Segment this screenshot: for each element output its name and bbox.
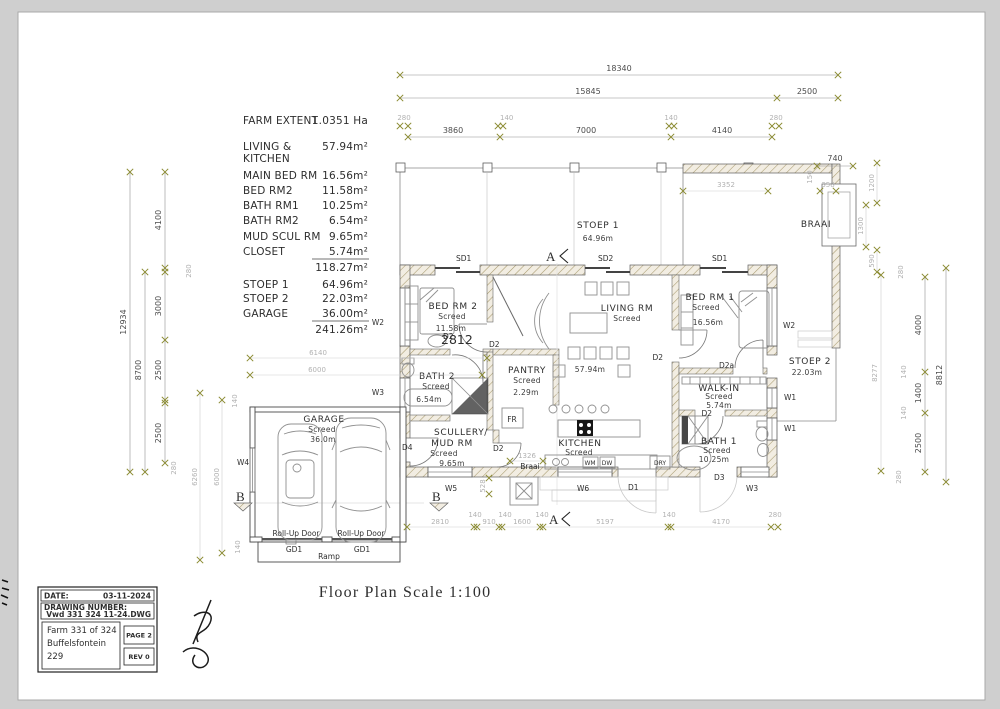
- dim-text-light: 1200: [868, 174, 876, 192]
- dim-text-light: 280: [170, 461, 178, 474]
- dim-text-light: 140: [234, 540, 242, 553]
- dim-text-light: 140: [900, 365, 908, 378]
- pantry-finish: Screed: [513, 376, 541, 385]
- revision: REV 0: [128, 653, 150, 661]
- bath2-name: BATH 2: [419, 372, 455, 382]
- dim-text-light: 280: [397, 114, 410, 122]
- dry-tag: DRY: [654, 460, 666, 467]
- living-finish: Screed: [613, 314, 641, 323]
- dim-text-light: 140: [500, 114, 513, 122]
- dim-text: 740: [827, 154, 842, 163]
- w1-tag: W1: [784, 393, 796, 402]
- farm-line3: 229: [47, 652, 63, 662]
- drawing-title: Floor Plan Scale 1:100: [319, 584, 492, 601]
- stoep1-area: 64.96m: [583, 234, 614, 243]
- gd1-tag: GD1: [286, 545, 303, 554]
- w2-tag: W2: [783, 321, 795, 330]
- farm-extent-value: 1.0351 Ha: [312, 115, 368, 127]
- dim-text: 2500: [154, 360, 163, 380]
- stoep1-name: STOEP 1: [577, 221, 619, 231]
- dim-text: 3860: [443, 126, 463, 135]
- dim-text: 7000: [576, 126, 596, 135]
- dim-text-light: 6260: [191, 468, 199, 486]
- dim-text: 12934: [119, 309, 128, 334]
- rollup-door-label: Roll-Up Door: [272, 529, 320, 538]
- title-block: DATE: 03-11-2024 DRAWING NUMBER: Vwd 331…: [38, 587, 157, 672]
- legend-row-value: 11.58m²: [322, 185, 368, 197]
- garage-name: GARAGE: [303, 415, 344, 425]
- legend-row-label: KITCHEN: [243, 153, 290, 165]
- dim-text-light: 140: [498, 511, 511, 519]
- farm-line1: Farm 331 of 324: [47, 626, 117, 636]
- bath2-finish: Screed: [422, 382, 450, 391]
- braai-small-label: Braai: [520, 462, 540, 471]
- legend-row-label: MAIN BED RM: [243, 170, 317, 182]
- date-value: 03-11-2024: [103, 592, 151, 601]
- drawing-number-value: Vwd 331 324 11-24.DWG: [46, 610, 151, 619]
- legend-row-value: 16.56m²: [322, 170, 368, 182]
- bedrm2-name: BED RM 2: [428, 302, 477, 312]
- legend-row-value: 36.00m²: [322, 308, 368, 320]
- dim-text-light: 140: [662, 511, 675, 519]
- section-b-left: B: [236, 489, 245, 504]
- bedrm1-finish: Screed: [692, 303, 720, 312]
- d1-tag: D1: [628, 483, 639, 492]
- w3-tag: W3: [746, 484, 758, 493]
- pantry-area: 2.29m: [513, 388, 539, 397]
- dim-text-light: 1600: [513, 518, 531, 526]
- dim-text: 2500: [154, 423, 163, 443]
- dim-text-light: 280: [768, 511, 781, 519]
- w5-tag: W5: [445, 484, 457, 493]
- dim-text-light: 4170: [712, 518, 730, 526]
- d2-tag: D2: [443, 332, 454, 341]
- w3-tag: W3: [372, 388, 384, 397]
- bedrm1-area: 16.56m: [693, 318, 724, 327]
- dim-text: 1400: [914, 383, 923, 403]
- bath2-area: 6.54m: [416, 395, 442, 404]
- d2-tag: D2: [701, 409, 712, 418]
- sd2-tag: SD2: [598, 254, 614, 263]
- section-a-top: A: [546, 249, 556, 264]
- d3-tag: D3: [714, 473, 725, 482]
- scullery-name1: SCULLERY/: [434, 428, 488, 438]
- rollup-door-label: Roll-Up Door: [337, 529, 385, 538]
- legend-row-label: GARAGE: [243, 308, 288, 320]
- legend-row-label: MUD SCUL RM: [243, 231, 321, 243]
- stoep2-area: 22.03m: [792, 368, 823, 377]
- dim-text-light: 140: [900, 406, 908, 419]
- w4-tag: W4: [237, 458, 249, 467]
- farm-line2: Buffelsfontein: [47, 639, 106, 649]
- dim-text: 4140: [712, 126, 732, 135]
- dim-text-light: 150: [806, 170, 814, 183]
- dw-tag: DW: [602, 460, 613, 467]
- legend-row-label: BATH RM1: [243, 200, 299, 212]
- sd1-tag: SD1: [712, 254, 728, 263]
- dim-text-light: 6000: [213, 468, 221, 486]
- sd1-tag: SD1: [456, 254, 472, 263]
- dim-text-light: 140: [468, 511, 481, 519]
- d2-tag: D2: [493, 444, 504, 453]
- dim-text: 2500: [914, 433, 923, 453]
- section-b-right: B: [432, 489, 441, 504]
- dim-text: 8812: [935, 365, 944, 385]
- w1-tag: W1: [784, 424, 796, 433]
- dim-text-light: 528: [479, 479, 487, 492]
- page-number: PAGE 2: [126, 632, 152, 640]
- walkin-finish: Screed: [705, 392, 733, 401]
- d2a-tag: D2a: [719, 361, 734, 370]
- d2-tag: D2: [652, 353, 663, 362]
- dim-text-light: 1300: [857, 217, 865, 235]
- legend-subtotal: 118.27m²: [315, 262, 368, 274]
- dim-text: 8700: [134, 360, 143, 380]
- legend-row-label: CLOSET: [243, 246, 285, 258]
- bath1-area: 10.25m: [699, 455, 730, 464]
- dim-text-light: 1326: [518, 452, 536, 460]
- dim-text-light: 910: [482, 518, 495, 526]
- dim-text-light: 140: [231, 394, 239, 407]
- legend-row-label: BATH RM2: [243, 215, 299, 227]
- dim-text: 4100: [154, 210, 163, 230]
- farm-extent-label: FARM EXTENT: [243, 115, 318, 127]
- legend-row-value: 22.03m²: [322, 293, 368, 305]
- living-area: 57.94m: [575, 365, 606, 374]
- dim-text: 18340: [606, 64, 631, 73]
- dim-text-light: 5197: [596, 518, 614, 526]
- living-name: LIVING RM: [601, 304, 653, 314]
- garage-area: 36.0m: [310, 435, 336, 444]
- legend-row-label: LIVING &: [243, 141, 291, 153]
- legend-row-value: 64.96m²: [322, 279, 368, 291]
- dim-text-light: 140: [664, 114, 677, 122]
- garage-finish: Screed: [308, 425, 336, 434]
- wm-tag: WM: [584, 460, 595, 467]
- legend-row-value: 5.74m²: [329, 246, 368, 258]
- dim-text-light: 280: [185, 264, 193, 277]
- dim-text: 4000: [914, 315, 923, 335]
- dim-text-light: 590: [868, 254, 876, 267]
- date-label: DATE:: [44, 592, 69, 601]
- legend-row-value: 10.25m²: [322, 200, 368, 212]
- fr-tag: FR: [507, 415, 517, 424]
- legend-row-label: STOEP 2: [243, 293, 289, 305]
- dim-text-light: 280: [895, 470, 903, 483]
- kitchen-finish: Screed: [565, 448, 593, 457]
- stoep2-name: STOEP 2: [789, 357, 831, 367]
- legend-row-label: STOEP 1: [243, 279, 289, 291]
- scullery-finish: Screed: [430, 449, 458, 458]
- dim-text: 3000: [154, 296, 163, 316]
- ramp-label: Ramp: [318, 552, 340, 561]
- dim-text-light: 3352: [717, 181, 735, 189]
- dim-text-light: 6140: [309, 349, 327, 357]
- d2-tag: D2: [489, 340, 500, 349]
- legend-row-value: 9.65m²: [329, 231, 368, 243]
- legend-row-value: 57.94m²: [322, 141, 368, 153]
- dim-text-light: 280: [769, 114, 782, 122]
- gd1-tag: GD1: [354, 545, 371, 554]
- edge-artifact: [1, 580, 9, 605]
- w6-tag: W6: [577, 484, 589, 493]
- dim-text: 15845: [575, 87, 600, 96]
- pantry-name: PANTRY: [508, 366, 546, 376]
- floor-plan-drawing: FARM EXTENT 1.0351 Ha LIVING & 57.94m² K…: [0, 0, 1000, 709]
- bath1-finish: Screed: [703, 446, 731, 455]
- legend-total: 241.26m²: [315, 324, 368, 336]
- braai-name: BRAAI: [801, 220, 831, 230]
- dim-text-light: 140: [535, 511, 548, 519]
- dim-text-light: 8277: [871, 364, 879, 382]
- d4-tag: D4: [402, 443, 413, 452]
- bedrm2-finish: Screed: [438, 312, 466, 321]
- section-a-bottom: A: [549, 512, 559, 527]
- scullery-area: 9.65m: [439, 459, 465, 468]
- bedrm1-name: BED RM 1: [685, 293, 734, 303]
- scullery-name2: MUD RM: [431, 439, 473, 449]
- dim-text-light: 358: [821, 181, 834, 189]
- legend-row-label: BED RM2: [243, 185, 293, 197]
- dim-text-light: 280: [897, 265, 905, 278]
- w2-tag: W2: [372, 318, 384, 327]
- dim-text-light: 6000: [308, 366, 326, 374]
- legend-row-value: 6.54m²: [329, 215, 368, 227]
- dim-text-light: 2810: [431, 518, 449, 526]
- dim-text: 2500: [797, 87, 817, 96]
